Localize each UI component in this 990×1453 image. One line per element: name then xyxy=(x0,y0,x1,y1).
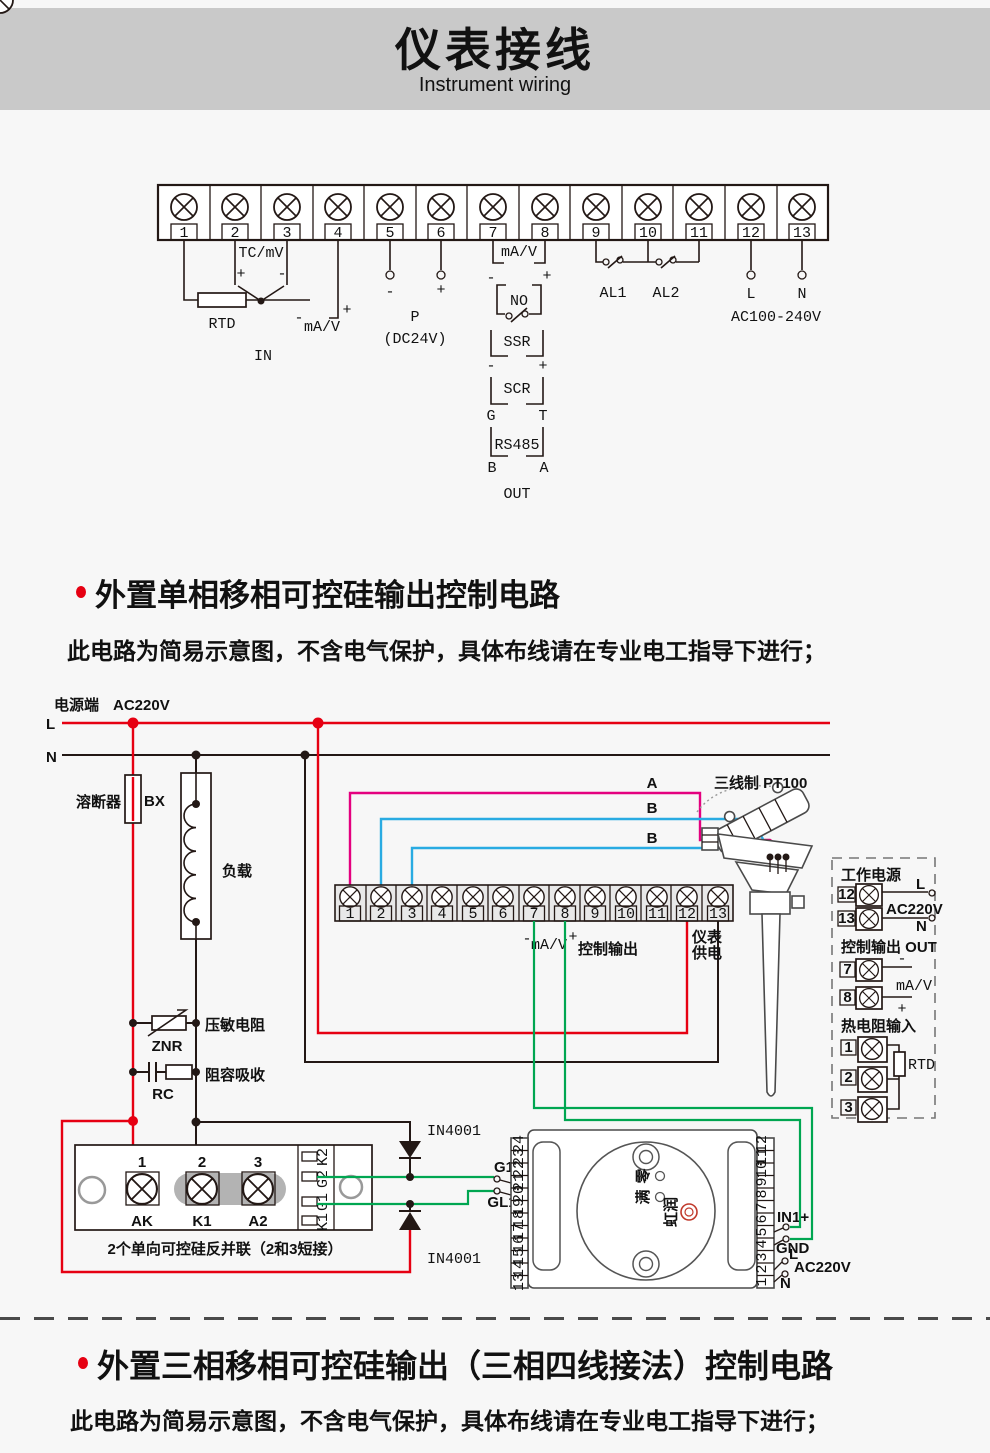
terminal-number: 10 xyxy=(639,225,657,242)
fuse-code: BX xyxy=(144,793,165,810)
sensor-label: 三线制 PT100 xyxy=(714,774,807,792)
module-n3: 3 xyxy=(254,1154,262,1171)
meter-term: 5 xyxy=(754,1227,771,1236)
p-volt-label: (DC24V) xyxy=(383,331,446,348)
terminal-number: 6 xyxy=(436,225,445,242)
strip-number: 9 xyxy=(590,906,599,923)
wire-a-label: A xyxy=(647,775,658,792)
out-plus: + xyxy=(542,268,551,285)
strip-number: 10 xyxy=(617,906,635,923)
module-caption: 2个单向可控硅反并联（2和3短接） xyxy=(107,1240,342,1258)
rs485-label: RS485 xyxy=(494,437,539,454)
mid-terminal-strip: 1 2 3 4 5 6 7 8 9 10 11 12 13 xyxy=(335,885,733,923)
supply-label-1: 仪表 xyxy=(691,928,723,946)
ctrl-label: 控制输出 xyxy=(578,940,638,958)
terminal-number: 4 xyxy=(333,225,342,242)
ssr-minus: - xyxy=(486,358,495,375)
snubber-label: 阻容吸收 xyxy=(205,1066,265,1084)
rtd-label: RTD xyxy=(208,316,235,333)
panel-minus: - xyxy=(897,951,906,968)
mains-n: N xyxy=(797,286,806,303)
meter-adj2: 满 xyxy=(634,1189,652,1204)
ctrl-mav: mA/V xyxy=(531,937,567,954)
out-mav-label: mA/V xyxy=(501,244,537,261)
control-circuit: 电源端 AC220V L N 溶断器 BX 负载 压敏电阻 ZNR 阻容吸收 R… xyxy=(46,696,943,1292)
module-a2: A2 xyxy=(248,1213,267,1230)
panel-t8: 8 xyxy=(843,989,851,1006)
terminal-number: 5 xyxy=(385,225,394,242)
out-minus: - xyxy=(486,270,495,287)
wiring-diagrams: 1 2 3 4 5 6 7 8 9 10 11 12 13 TC/mV + - … xyxy=(0,0,990,1453)
meter-adj1: 零 xyxy=(635,1168,652,1185)
meter-term: 1 xyxy=(754,1277,771,1286)
thyristor-module: 1 2 3 AK K1 A2 K2 G2 G1 K1 2个单向可控硅反并联（2和… xyxy=(75,1145,372,1258)
panel-t2: 2 xyxy=(844,1069,852,1086)
strip-number: 3 xyxy=(407,906,416,923)
top-output-wiring: mA/V - + NO SSR - + SCR G T RS485 B A OU… xyxy=(486,240,821,503)
panel-mav: mA/V xyxy=(896,978,932,995)
snubber-code: RC xyxy=(152,1086,174,1103)
in-plus: + xyxy=(342,302,351,319)
strip-number: 5 xyxy=(468,906,477,923)
al1-label: AL1 xyxy=(599,285,626,302)
tc-label: TC/mV xyxy=(238,245,283,262)
mains-voltage: AC100-240V xyxy=(731,309,821,326)
diode-bottom: IN4001 xyxy=(399,1204,481,1268)
terminal-number: 1 xyxy=(179,225,188,242)
module-k1: K1 xyxy=(192,1213,211,1230)
meter-term: 13 xyxy=(511,1273,528,1291)
ssr-plus: + xyxy=(538,358,547,375)
panel-plus: + xyxy=(897,1001,906,1018)
terminal-number: 11 xyxy=(690,225,708,242)
varistor-label: 压敏电阻 xyxy=(205,1016,265,1034)
load-label: 负载 xyxy=(222,862,252,880)
wire-b2-label: B xyxy=(647,830,658,847)
fuse-label: 溶断器 xyxy=(76,793,122,811)
scr-label: SCR xyxy=(503,381,530,398)
strip-number: 1 xyxy=(345,906,354,923)
rs485-b: B xyxy=(487,460,496,477)
ctrl-plus: + xyxy=(568,929,577,946)
panel-rtd: RTD xyxy=(908,1057,935,1074)
strip-number: 11 xyxy=(648,906,666,923)
terminal-number: 9 xyxy=(591,225,600,242)
terminal-number: 3 xyxy=(282,225,291,242)
meter-brand: 虹润 xyxy=(662,1197,680,1227)
meter-term: 7 xyxy=(754,1202,771,1211)
in-mav-label: mA/V xyxy=(304,319,340,336)
panel-out-title: 控制输出 OUT xyxy=(841,938,937,956)
meter-term: 10 xyxy=(754,1160,771,1178)
module-pin-k2: K2 xyxy=(315,1148,332,1166)
p-plus: + xyxy=(436,282,445,299)
module-pin-g1: G1 xyxy=(315,1193,332,1211)
rail-l-label: L xyxy=(46,716,55,733)
diode-top: IN4001 xyxy=(399,1123,481,1158)
terminal-number: 7 xyxy=(488,225,497,242)
terminal-number: 2 xyxy=(230,225,239,242)
p-minus: - xyxy=(385,284,394,301)
scr-t: T xyxy=(538,408,547,425)
module-ak: AK xyxy=(131,1213,153,1230)
tc-minus: - xyxy=(277,266,286,283)
ssr-label: SSR xyxy=(503,334,530,351)
wire-b1-label: B xyxy=(647,800,658,817)
in-minus: - xyxy=(294,310,303,327)
strip-number: 12 xyxy=(678,906,696,923)
mains-l: L xyxy=(746,286,755,303)
panel-t13: 13 xyxy=(838,910,855,927)
meter-in1-label: IN1+ xyxy=(777,1209,809,1226)
rs485-a: A xyxy=(539,460,548,477)
panel-power-title: 工作电源 xyxy=(841,866,901,884)
source-label: 电源端 xyxy=(54,696,99,714)
strip-number: 13 xyxy=(709,906,727,923)
al2-label: AL2 xyxy=(652,285,679,302)
source-voltage: AC220V xyxy=(113,697,170,714)
meter-term: 3 xyxy=(754,1252,771,1261)
panel-n: N xyxy=(916,918,927,935)
varistor-code: ZNR xyxy=(152,1038,183,1055)
supply-label-2: 供电 xyxy=(691,944,722,962)
diode-top-label: IN4001 xyxy=(427,1123,481,1140)
meter-term: 8 xyxy=(754,1189,771,1198)
meter-mains-label: AC220V xyxy=(794,1259,851,1276)
out-group-label: OUT xyxy=(503,486,530,503)
strip-number: 7 xyxy=(529,906,538,923)
panel-t7: 7 xyxy=(843,961,851,978)
top-terminal-strip: 1 2 3 4 5 6 7 8 9 10 11 12 13 xyxy=(158,185,828,242)
terminal-number: 12 xyxy=(742,225,760,242)
top-input-wiring: TC/mV + - RTD - mA/V + IN - + P (DC24V) xyxy=(184,240,447,365)
strip-number: 4 xyxy=(437,906,446,923)
module-n1: 1 xyxy=(138,1154,146,1171)
meter-term: 6 xyxy=(754,1214,771,1223)
module-pin-g2: G2 xyxy=(315,1170,332,1188)
meter-term: 9 xyxy=(754,1177,771,1186)
module-n2: 2 xyxy=(198,1154,206,1171)
panel-t1: 1 xyxy=(844,1039,852,1056)
strip-number: 2 xyxy=(376,906,385,923)
strip-number: 8 xyxy=(560,906,569,923)
no-label: NO xyxy=(510,293,528,310)
tc-plus: + xyxy=(236,266,245,283)
meter-term: 4 xyxy=(754,1239,771,1248)
diode-bottom-label: IN4001 xyxy=(427,1251,481,1268)
panel-t3: 3 xyxy=(844,1099,852,1116)
meter-term: 2 xyxy=(754,1264,771,1273)
panel-l: L xyxy=(916,876,925,893)
panel-t12: 12 xyxy=(838,886,855,903)
meter-n-label: N xyxy=(780,1275,791,1292)
terminal-number: 13 xyxy=(793,225,811,242)
terminal-panel: 工作电源 12 L AC220V 13 N 控制输出 OUT 7 - mA/V xyxy=(832,858,943,1122)
in-group-label: IN xyxy=(254,348,272,365)
scr-g: G xyxy=(486,408,495,425)
terminal-number: 8 xyxy=(540,225,549,242)
rail-n-label: N xyxy=(46,749,57,766)
p-label: P xyxy=(410,309,419,326)
strip-number: 6 xyxy=(498,906,507,923)
module-pin-k1: K1 xyxy=(315,1213,332,1231)
panel-rtd-title: 热电阻输入 xyxy=(841,1017,916,1035)
